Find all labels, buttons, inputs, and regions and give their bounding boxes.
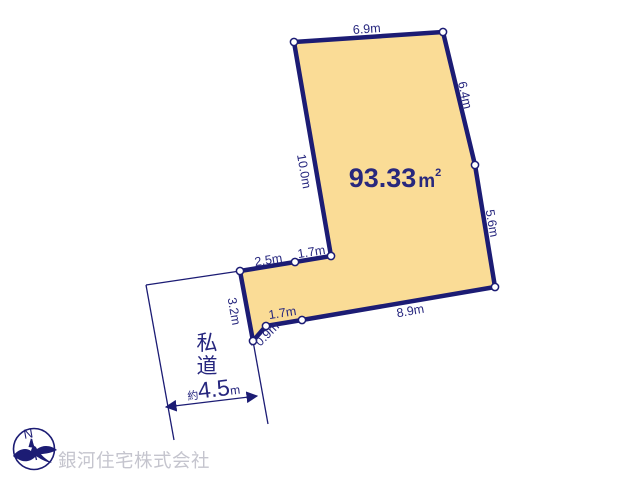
dim-label-west-side: 3.2m [225,296,244,326]
vertex-dot [491,283,498,290]
vertex-dot [236,267,243,274]
compass-icon: N [13,425,57,469]
road-width-label: 約4.5m [185,373,241,405]
road-name-char-2: 道 [197,355,218,378]
vertex-dot [290,38,297,45]
road-right-edge [253,341,268,424]
road-top-edge [146,271,240,285]
road-width-unit: m [229,383,241,398]
area-unit: m [418,171,435,192]
vertex-dot [298,316,305,323]
diagram-svg: 6.9m 6.4m 5.6m 10.0m 8.9m 2.5m 1.7m 1.7m… [0,0,640,480]
area-exponent: 2 [435,167,441,179]
company-watermark: 銀河住宅株式会社 [58,450,210,471]
road-left-edge [146,285,174,440]
vertex-dot [327,252,334,259]
vertex-dot [471,161,478,168]
vertex-dot [439,28,446,35]
dim-label-top: 6.9m [352,21,381,37]
road-name-char-1: 私 [197,332,218,355]
dim-label-left: 10.0m [294,153,314,190]
land-plot-diagram: 6.9m 6.4m 5.6m 10.0m 8.9m 2.5m 1.7m 1.7m… [0,0,640,480]
area-value: 93.33 [349,163,417,193]
